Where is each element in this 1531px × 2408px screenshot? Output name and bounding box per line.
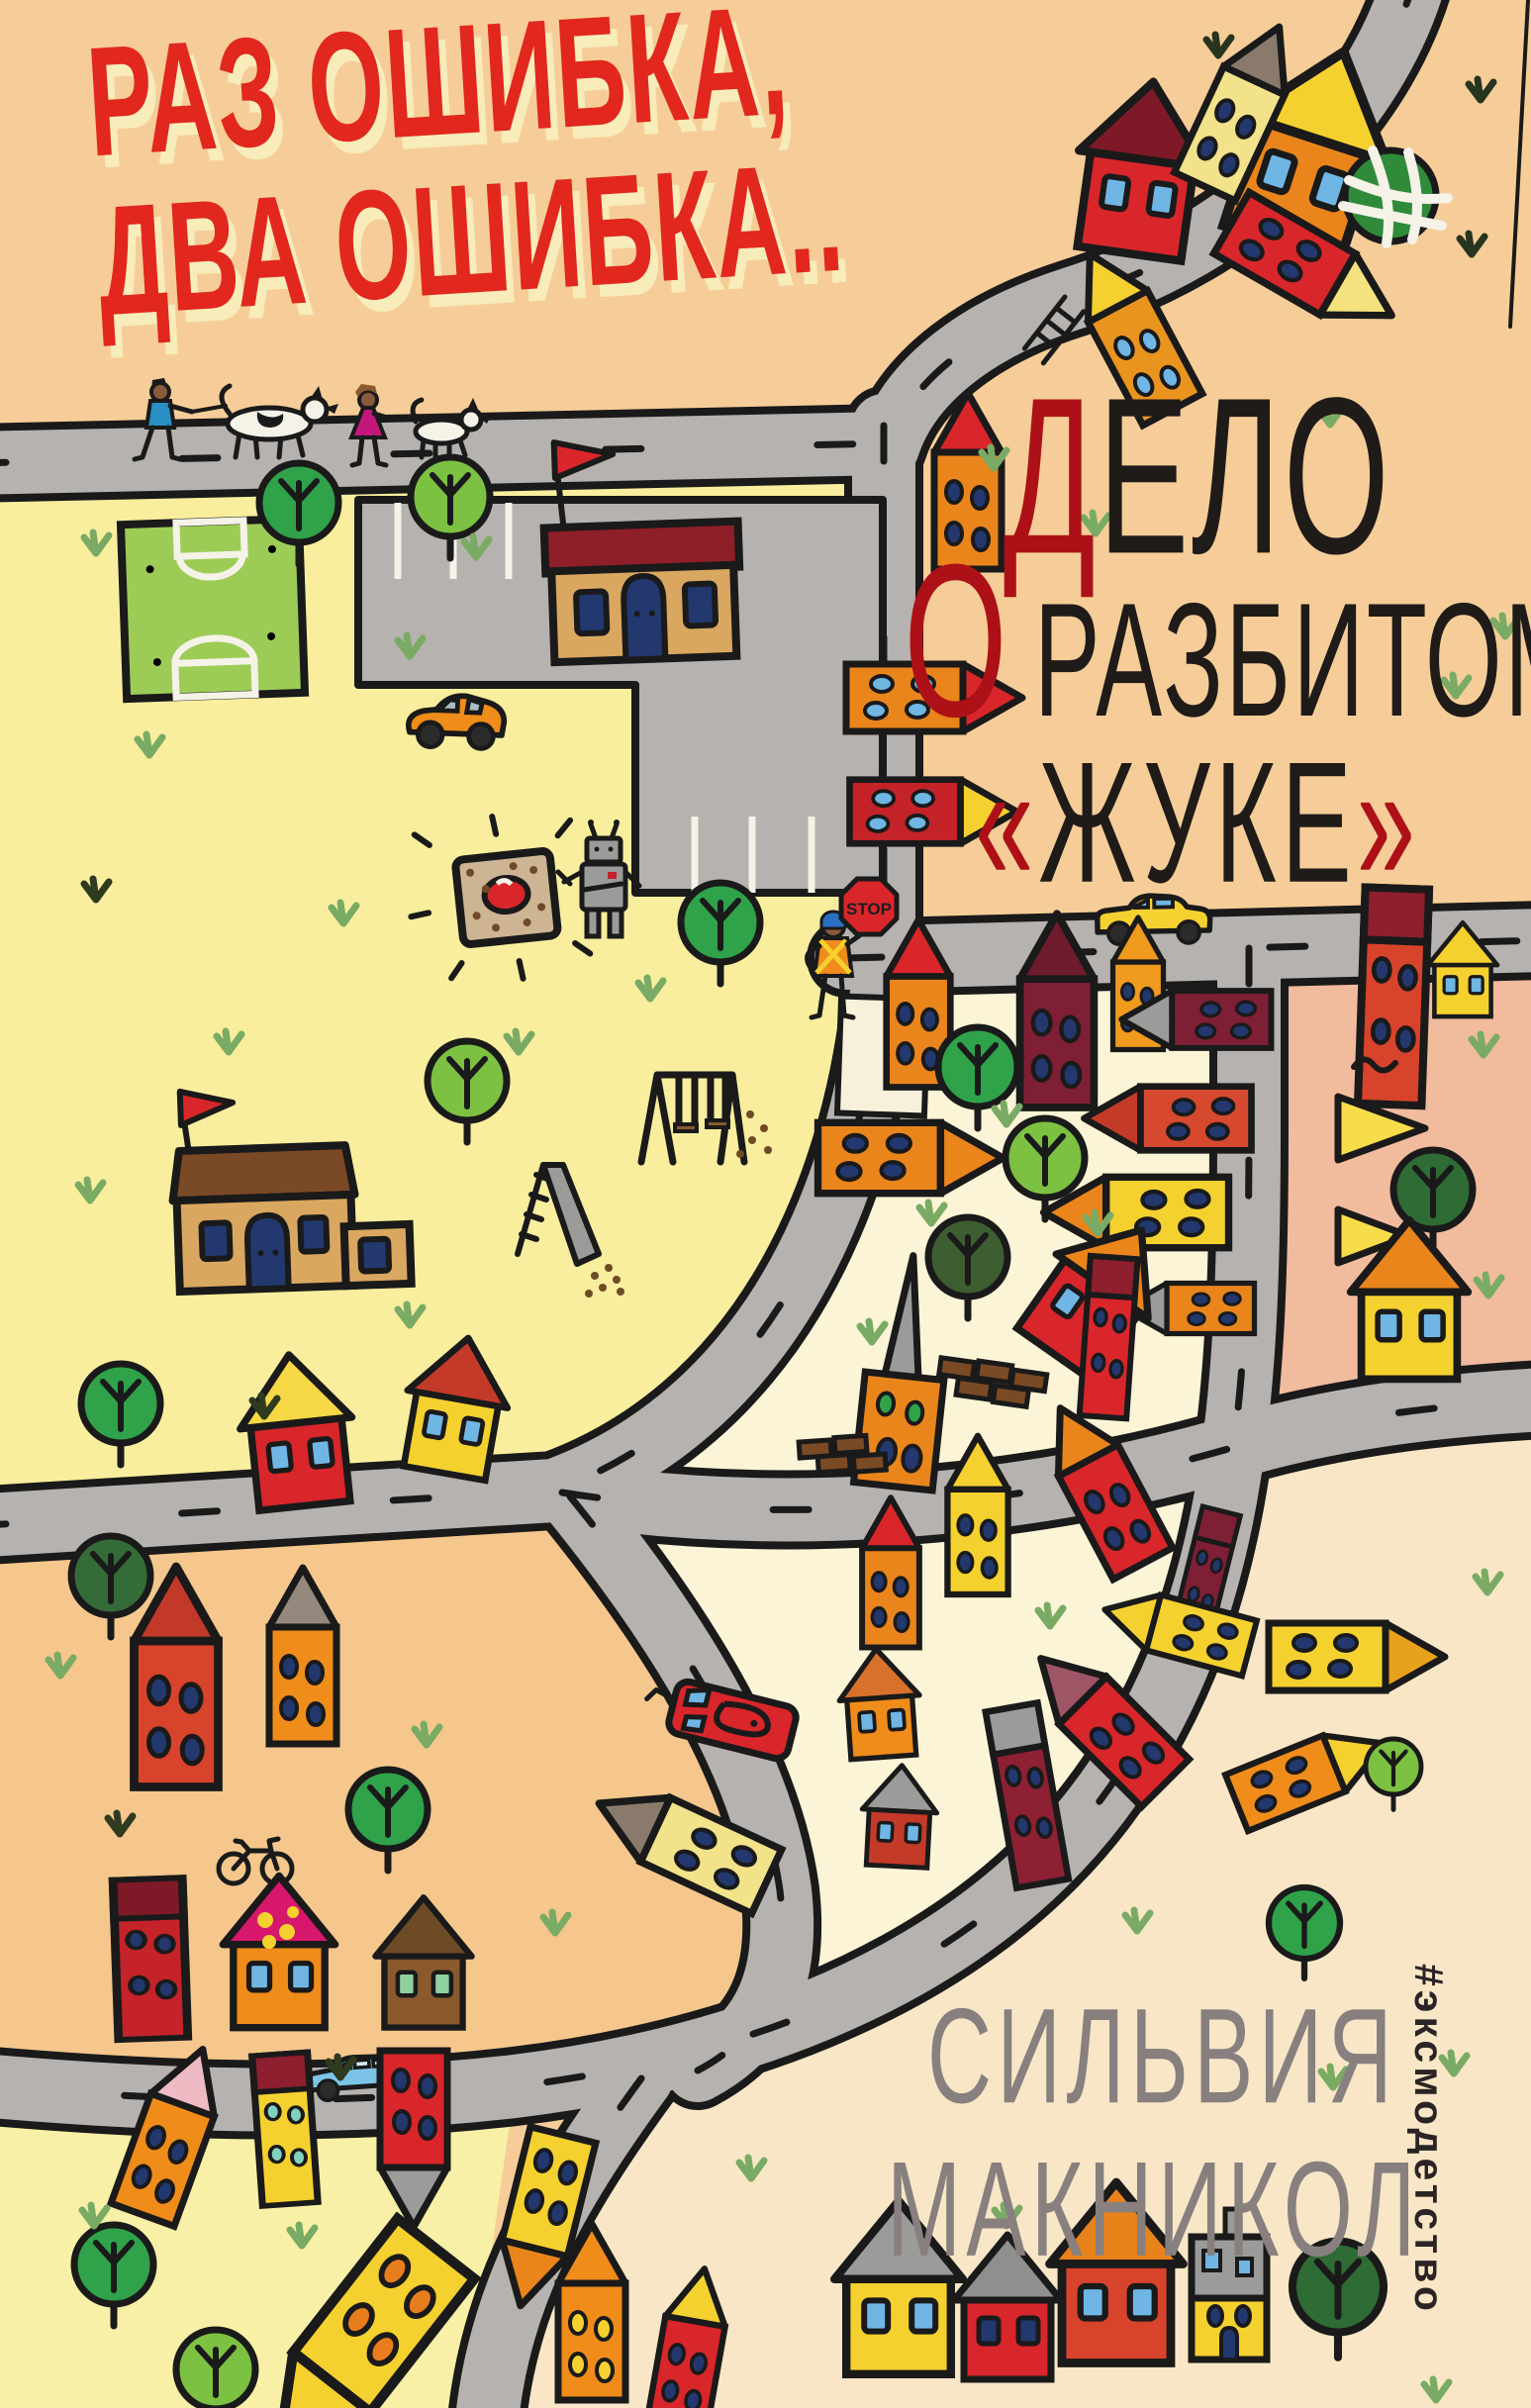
book-title-line3: «ЖУКЕ» <box>946 722 1449 921</box>
guillemet-open: « <box>975 725 1038 919</box>
author-last-name: МАКНИКОЛ <box>887 2134 1397 2286</box>
house-icon <box>252 2052 318 2206</box>
house-icon <box>1080 1256 1138 1418</box>
author-first-name: СИЛЬВИЯ <box>887 1981 1397 2134</box>
title-word: ЖУКЕ <box>1038 725 1356 919</box>
stop-sign-label: STOP <box>846 900 892 918</box>
stop-sign: STOP <box>841 879 897 934</box>
book-cover: STOP <box>0 0 1531 2408</box>
series-title: РАЗ ОШИБКА, ДВА ОШИБКА.. <box>83 0 848 341</box>
soccer-field <box>121 519 305 699</box>
guillemet-close: » <box>1357 725 1420 919</box>
author-name: СИЛЬВИЯ МАКНИКОЛ <box>887 1981 1397 2286</box>
publisher-hashtag: #эксмодетство <box>1405 1964 1452 2315</box>
tree-icon <box>176 2330 255 2408</box>
house-icon <box>113 1878 188 2040</box>
